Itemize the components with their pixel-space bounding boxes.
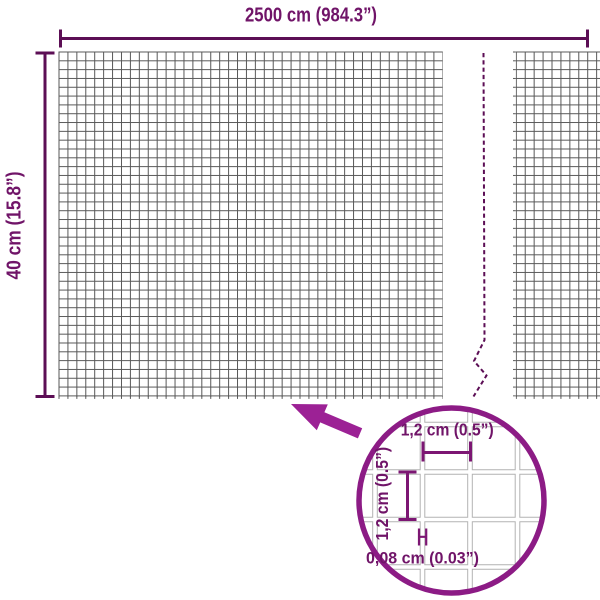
svg-text:1,2 cm (0.5”): 1,2 cm (0.5”) — [401, 420, 494, 440]
svg-text:0,08 cm (0.03”): 0,08 cm (0.03”) — [366, 548, 479, 567]
svg-text:40 cm (15.8”): 40 cm (15.8”) — [3, 172, 26, 280]
svg-text:2500 cm (984.3”): 2500 cm (984.3”) — [245, 4, 377, 27]
svg-text:1,2 cm (0.5”): 1,2 cm (0.5”) — [372, 447, 392, 541]
